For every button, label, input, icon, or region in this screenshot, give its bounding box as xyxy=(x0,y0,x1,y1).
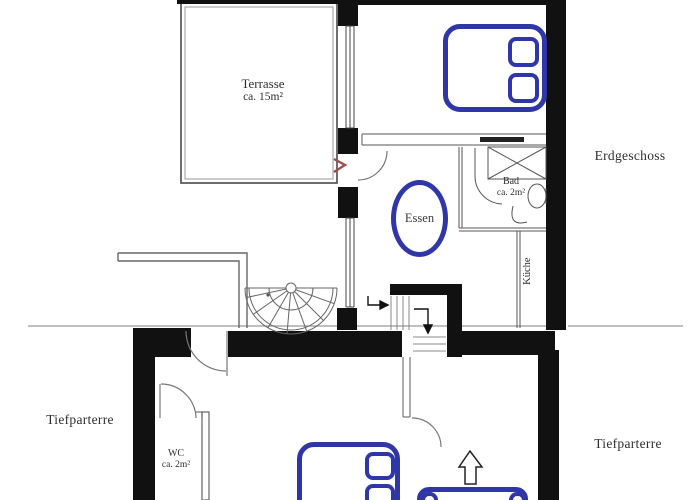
wall-segment xyxy=(358,0,546,5)
wall-segment xyxy=(546,0,566,330)
pillow-icon xyxy=(508,37,539,67)
room-label-essen: Essen xyxy=(405,211,434,226)
chevron-right-icon xyxy=(334,159,345,172)
essen-room-marker: Essen xyxy=(391,180,448,257)
floor-plan-canvas: Essen Terrasse ca. 15m² Erdgeschoss Bad … xyxy=(0,0,700,500)
wc-door xyxy=(160,384,196,418)
corridor-wall xyxy=(403,357,441,447)
door-arc xyxy=(161,384,196,418)
wall-segment xyxy=(177,0,339,4)
room-label-wc: WC ca. 2m² xyxy=(146,448,206,471)
floor-label-tiefparterre-left: Tiefparterre xyxy=(28,412,132,428)
arrow-up-icon xyxy=(459,451,482,484)
floor-label-tiefparterre-right: Tiefparterre xyxy=(576,436,680,452)
door-arc xyxy=(412,418,441,447)
pillow-icon xyxy=(421,492,438,500)
door-arc xyxy=(358,151,387,180)
room-label-terrasse: Terrasse ca. 15m² xyxy=(213,76,313,105)
pillow-icon xyxy=(365,484,395,500)
thin-l-wall xyxy=(118,253,247,328)
wall-segment xyxy=(338,187,358,218)
wall-segment xyxy=(338,128,358,154)
pillow-icon xyxy=(365,452,395,480)
wall-segment xyxy=(133,328,191,357)
window xyxy=(346,26,354,307)
kitchen-counter xyxy=(362,134,546,145)
entrance-door xyxy=(186,331,227,376)
wall-segment xyxy=(337,308,357,330)
door-arc xyxy=(186,331,226,371)
sink-icon xyxy=(512,206,527,223)
stair-direction-arrows xyxy=(368,296,432,333)
wall-segment xyxy=(228,331,402,357)
wall-segment xyxy=(338,0,358,26)
kitchen-partition xyxy=(517,231,520,328)
pillow-icon xyxy=(509,492,526,500)
room-label-kueche: Küche xyxy=(522,247,534,295)
floor-label-erdgeschoss: Erdgeschoss xyxy=(578,148,682,164)
wall-segment xyxy=(538,350,559,500)
room-label-bad: Bad ca. 2m² xyxy=(480,176,542,199)
pillow-icon xyxy=(508,73,539,103)
